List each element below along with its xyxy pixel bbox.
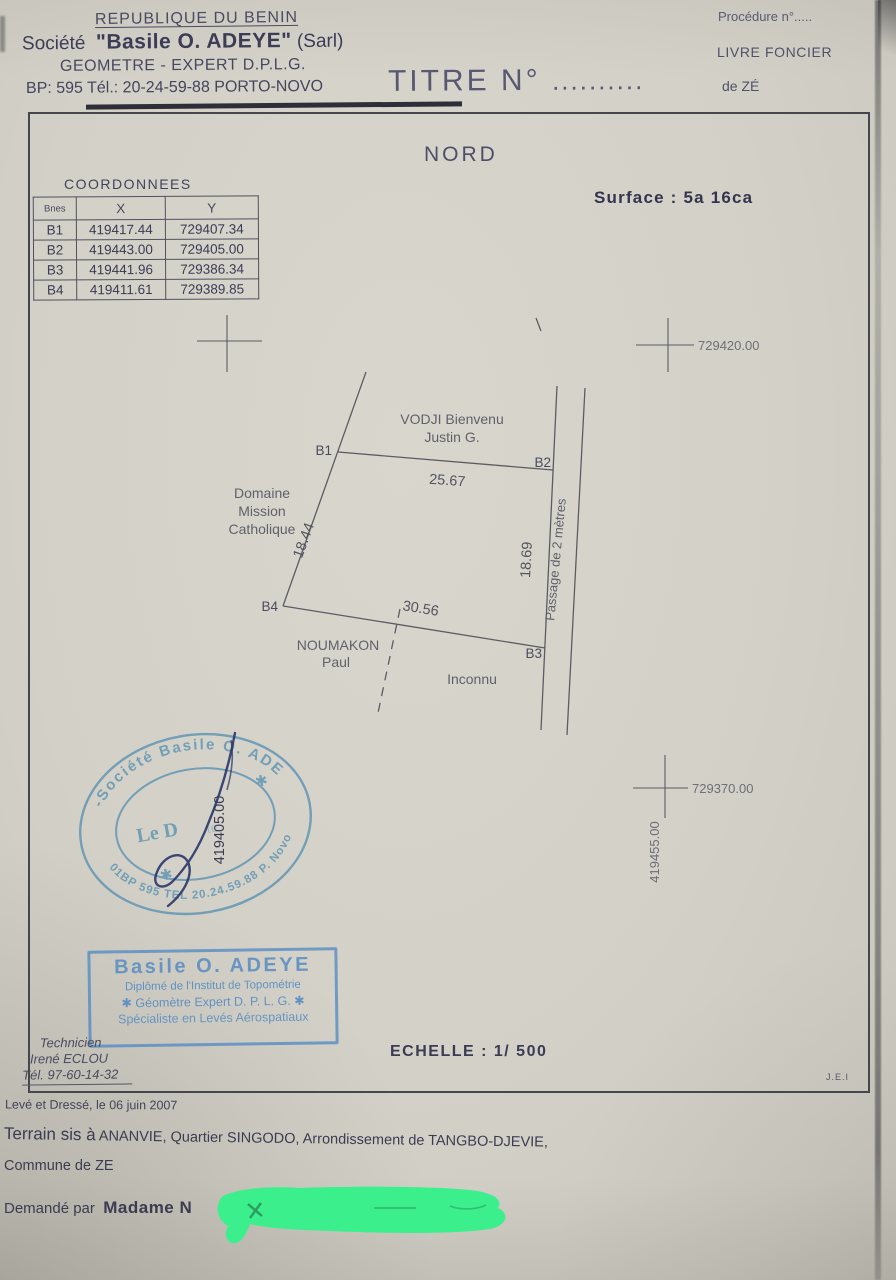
green-redaction-scribble [218, 1187, 506, 1244]
north-label: NORD [424, 143, 498, 167]
scan-mark [0, 16, 5, 52]
procedure-number: Procédure n°..... [718, 9, 812, 24]
requested-prefix: Demandé par [4, 1200, 95, 1217]
address-line: BP: 595 Tél.: 20-24-59-88 PORTO-NOVO [26, 78, 323, 98]
stamp-specialty: Spécialiste en Levés Aérospatiaux [91, 1009, 335, 1026]
survey-date-line: Levé et Dressé, le 06 juin 2007 [5, 1098, 177, 1113]
cell-y: 729407.34 [165, 219, 258, 239]
surface-area: Surface : 5a 16ca [594, 188, 753, 208]
corner-shadow [878, 0, 896, 80]
requested-name: Madame N [103, 1198, 192, 1217]
republic-title: REPUBLIQUE DU BENIN [95, 9, 298, 29]
title-number: TITRE N° .......... [388, 63, 644, 99]
register-of-ze: de ZÉ [722, 78, 759, 94]
company-line: Société "Basile O. ADEYE" (Sarl) [22, 29, 344, 56]
title-number-label: TITRE N° [388, 64, 541, 98]
round-seal: -Société Basile O. ADE 01BP 595 TEL 20.2… [50, 701, 343, 953]
col-y: Y [165, 196, 258, 219]
table-row: B4 419411.61 729389.85 [34, 279, 259, 300]
cell-x: 419441.96 [77, 259, 166, 279]
technician-phone: Tél. 97-60-14-32 [22, 1066, 132, 1085]
cell-x: 419411.61 [77, 279, 166, 299]
surveyor-stamp: Basile O. ADEYE Diplômé de l'Institut de… [87, 947, 338, 1047]
coordinates-table: Bnes X Y B1 419417.44 729407.34 B2 41944… [33, 195, 260, 300]
technician-role: Technicien [40, 1034, 132, 1051]
drafter-initials: J.E.I [826, 1072, 849, 1082]
seal-center-text-faint: te [205, 819, 219, 837]
company-name: "Basile O. ADEYE" [96, 29, 292, 54]
redacted-mark [450, 1205, 486, 1209]
stamp-name: Basile O. ADEYE [90, 953, 334, 979]
header-rule [86, 101, 462, 109]
commune-line: Commune de ZE [4, 1158, 114, 1174]
technician-name: Irené ECLOU [30, 1050, 132, 1067]
redacted-mark [248, 1203, 262, 1218]
table-row: B3 419441.96 729386.34 [34, 259, 259, 280]
technician-block: Technicien Irené ECLOU Tél. 97-60-14-32 [22, 1034, 133, 1085]
requested-by-line: Demandé par Madame N [4, 1198, 192, 1218]
table-header-row: Bnes X Y [33, 196, 258, 220]
coordinates-title: COORDONNEES [64, 176, 192, 192]
cell-bne: B4 [34, 280, 77, 300]
cell-x: 419443.00 [76, 239, 165, 259]
col-bnes: Bnes [33, 197, 76, 220]
page-edge-shadow [875, 0, 881, 1280]
cell-bne: B3 [34, 260, 77, 280]
table-row: B2 419443.00 729405.00 [33, 239, 258, 260]
scanned-survey-document: { "header": { "republic": "REPUBLIQUE DU… [0, 0, 896, 1280]
seal-asterisk: ✱ [159, 866, 174, 885]
scale-label: ECHELLE : 1/ 500 [390, 1043, 547, 1061]
company-suffix: (Sarl) [297, 31, 344, 52]
stamp-title: ✱ Géomètre Expert D. P. L. G. ✱ [91, 992, 335, 1010]
cell-y: 729386.34 [166, 259, 259, 279]
cell-y: 729389.85 [166, 279, 259, 299]
cell-bne: B1 [33, 220, 76, 240]
terrain-prefix: Terrain sis à [4, 1124, 96, 1144]
company-prefix: Société [22, 33, 86, 55]
col-x: X [76, 196, 165, 219]
terrain-location-line: Terrain sis à ANANVIE, Quartier SINGODO,… [4, 1124, 548, 1152]
cell-y: 729405.00 [165, 239, 258, 259]
land-register-label: LIVRE FONCIER [717, 44, 832, 60]
terrain-rest: ANANVIE, Quartier SINGODO, Arrondissemen… [96, 1128, 549, 1150]
seal-asterisk: ✱ [254, 772, 269, 791]
table-row: B1 419417.44 729407.34 [33, 219, 258, 240]
stamp-diploma: Diplômé de l'Institut de Topométrie [91, 978, 335, 993]
title-number-dots: .......... [552, 65, 644, 96]
profession-line: GEOMETRE - EXPERT D.P.L.G. [60, 56, 306, 76]
cell-bne: B2 [33, 240, 76, 260]
cell-x: 419417.44 [76, 219, 165, 239]
seal-center-text: Le D [135, 818, 180, 847]
